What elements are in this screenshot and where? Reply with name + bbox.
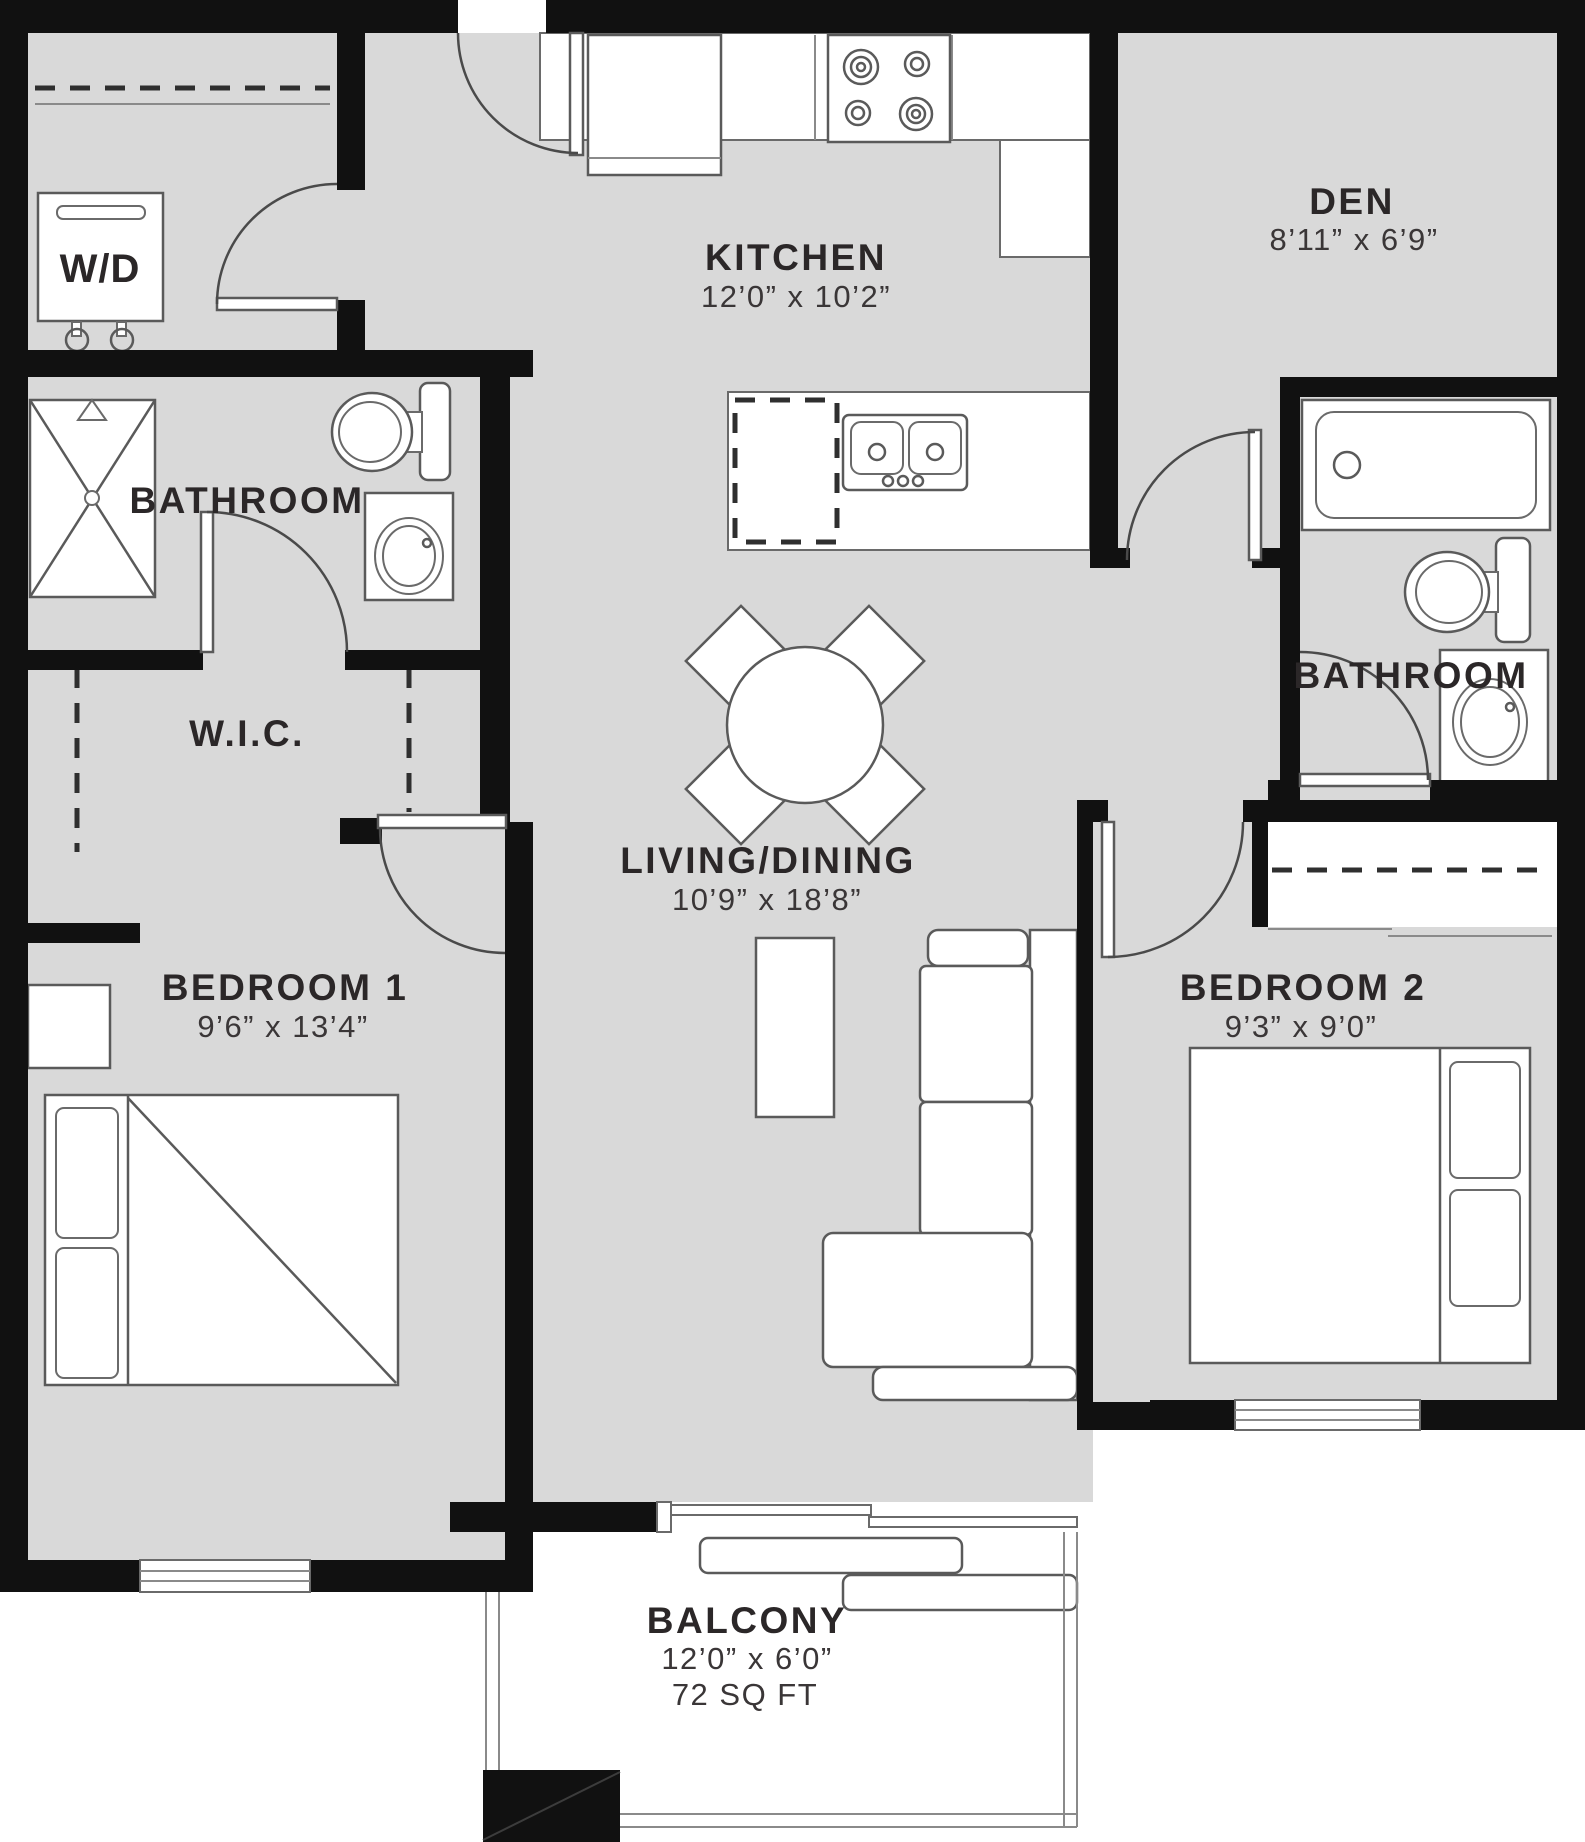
label-kitchen: KITCHEN xyxy=(705,237,887,278)
label-living-dining: LIVING/DINING xyxy=(620,840,916,881)
closet-bedroom2 xyxy=(1268,819,1557,936)
vanity-sink-1 xyxy=(365,493,453,600)
dims-living-dining: 10’9” x 18’8” xyxy=(672,882,862,917)
tv-console xyxy=(756,938,834,1117)
bathtub xyxy=(1302,400,1550,530)
stove xyxy=(828,35,950,142)
label-bathroom1: BATHROOM xyxy=(129,480,364,521)
sliding-door-balcony xyxy=(657,1502,1077,1610)
balcony-column xyxy=(483,1770,620,1842)
kitchen-island xyxy=(728,392,1090,550)
floor-plan-page: W/D KITCHEN 12’0” x 10’2” DEN 8’11” x 6’… xyxy=(0,0,1585,1842)
nightstand xyxy=(28,985,110,1068)
dining-table xyxy=(727,647,883,803)
floor-plan: W/D KITCHEN 12’0” x 10’2” DEN 8’11” x 6’… xyxy=(0,0,1585,1842)
area-balcony: 72 SQ FT xyxy=(672,1677,818,1712)
label-bedroom1: BEDROOM 1 xyxy=(162,967,409,1008)
pillow xyxy=(56,1108,118,1238)
kitchen-counter-return xyxy=(1000,140,1090,257)
double-sink xyxy=(843,415,967,490)
window-bedroom1 xyxy=(140,1560,310,1592)
dims-bedroom1: 9’6” x 13’4” xyxy=(197,1009,368,1044)
pillow xyxy=(1450,1062,1520,1178)
label-balcony: BALCONY xyxy=(647,1600,847,1641)
bed-2 xyxy=(1190,1048,1530,1363)
label-den: DEN xyxy=(1309,181,1395,222)
pillow xyxy=(1450,1190,1520,1306)
dims-balcony: 12’0” x 6’0” xyxy=(661,1641,832,1676)
dims-kitchen: 12’0” x 10’2” xyxy=(701,279,891,314)
fridge xyxy=(588,35,721,175)
window-bedroom2 xyxy=(1235,1400,1420,1430)
dims-bedroom2: 9’3” x 9’0” xyxy=(1225,1009,1378,1044)
bed-1 xyxy=(45,1095,398,1385)
label-laundry: W/D xyxy=(60,247,141,291)
label-bedroom2: BEDROOM 2 xyxy=(1180,967,1427,1008)
label-bathroom2: BATHROOM xyxy=(1293,655,1528,696)
pillow xyxy=(56,1248,118,1378)
dims-den: 8’11” x 6’9” xyxy=(1269,222,1438,257)
label-wic: W.I.C. xyxy=(189,713,305,754)
